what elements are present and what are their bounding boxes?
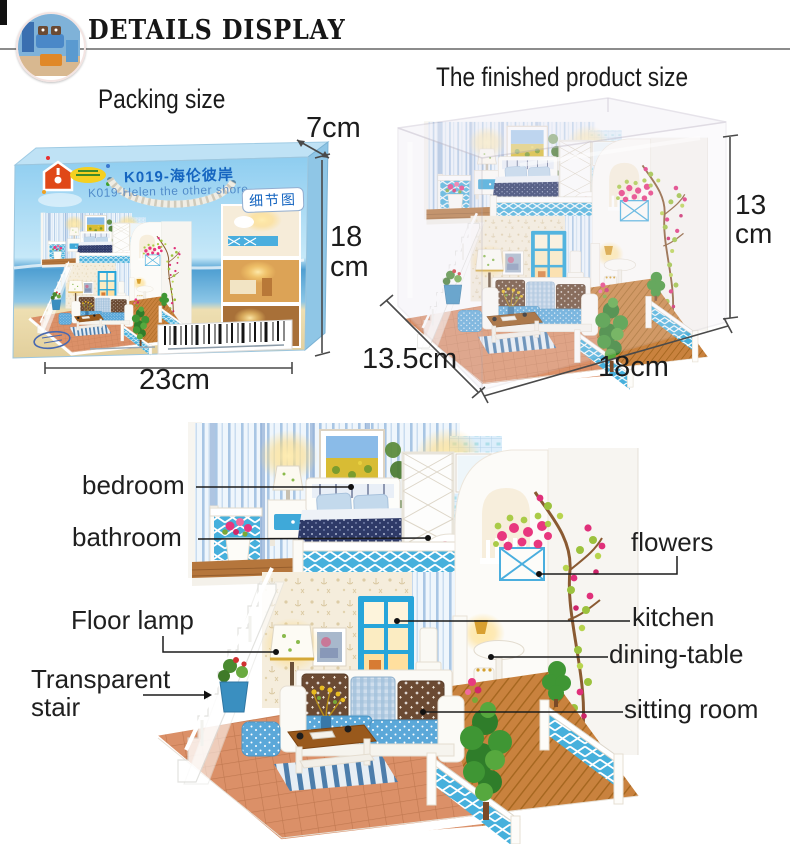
callout-bedroom: bedroom xyxy=(82,471,185,499)
details-display-page: DETAILS DISPLAY Packing size The finishe… xyxy=(0,0,790,844)
brand-logo-photo xyxy=(18,14,80,76)
callout-transparent-stair: Transparent stair xyxy=(31,665,181,721)
packing-height-dim: 18 cm xyxy=(330,223,378,282)
callout-flowers: flowers xyxy=(631,528,713,556)
callout-dining-table: dining-table xyxy=(609,640,743,668)
packing-width-dim: 23cm xyxy=(139,364,210,397)
brand-logo xyxy=(16,12,86,82)
main-product-photo xyxy=(154,422,642,844)
finished-height-dim: 13 cm xyxy=(735,191,783,248)
callout-floor-lamp: Floor lamp xyxy=(71,606,194,634)
finished-width-dim: 18cm xyxy=(598,351,669,384)
page-title: DETAILS DISPLAY xyxy=(88,15,346,46)
callout-sitting-room: sitting room xyxy=(624,695,758,723)
callout-bathroom: bathroom xyxy=(72,523,182,551)
callout-kitchen: kitchen xyxy=(632,603,714,631)
box-corner-badge: 细节图 xyxy=(242,187,305,213)
finished-depth-dim: 13.5cm xyxy=(362,343,457,376)
packing-depth-dim: 7cm xyxy=(306,112,361,145)
